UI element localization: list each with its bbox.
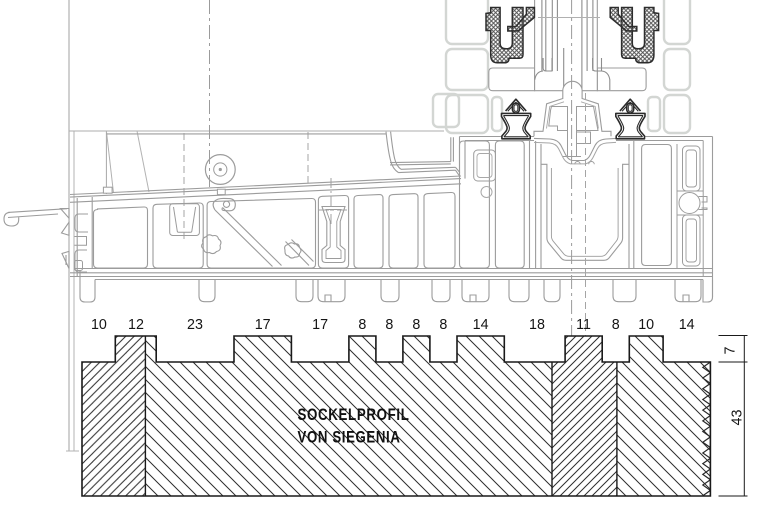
svg-text:18: 18 [529,317,545,333]
svg-text:8: 8 [385,317,393,333]
svg-text:VON SIEGENIA: VON SIEGENIA [298,429,401,447]
svg-text:17: 17 [255,317,271,333]
svg-text:43: 43 [729,410,745,426]
svg-text:8: 8 [612,317,620,333]
svg-text:23: 23 [187,317,203,333]
svg-text:8: 8 [439,317,447,333]
svg-text:10: 10 [638,317,654,333]
svg-text:7: 7 [722,346,738,354]
svg-text:14: 14 [473,317,489,333]
svg-text:12: 12 [128,317,144,333]
svg-text:14: 14 [679,317,695,333]
svg-text:10: 10 [91,317,107,333]
svg-text:17: 17 [312,317,328,333]
svg-text:11: 11 [576,317,591,333]
svg-text:8: 8 [358,317,366,333]
svg-text:SOCKELPROFIL: SOCKELPROFIL [298,406,410,424]
svg-text:8: 8 [412,317,420,333]
